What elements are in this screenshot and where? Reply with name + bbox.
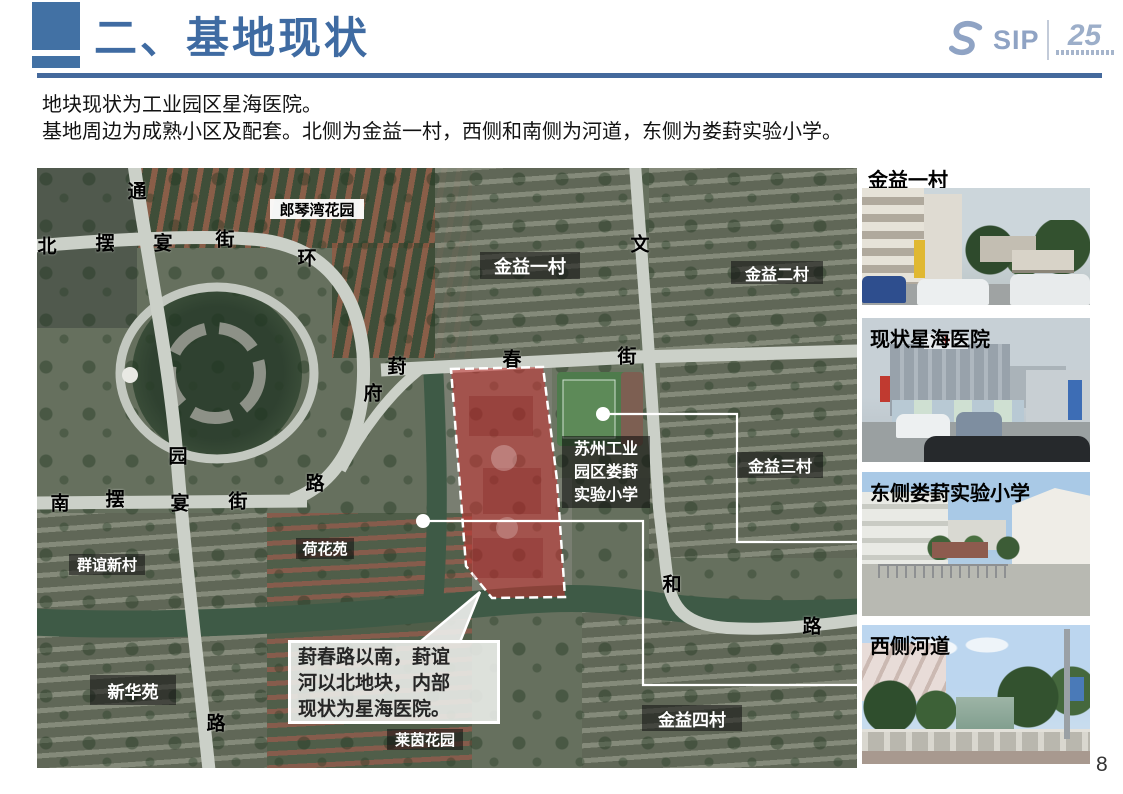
car-blue <box>862 276 906 303</box>
callout-line-3: 现状为星海医院。 <box>298 697 490 723</box>
street-label: 环 <box>297 244 316 271</box>
site-callout: 葑春路以南，葑谊 河以北地块，内部 现状为星海医院。 <box>288 640 500 724</box>
street-label: 北 <box>37 232 56 259</box>
site-building <box>469 396 533 436</box>
street-label: 葑 <box>387 352 406 379</box>
round-building <box>170 328 260 418</box>
street-label: 路 <box>305 469 324 496</box>
street-label: 园 <box>168 442 187 469</box>
logo-caption-microtext <box>1056 50 1114 55</box>
area-label-hehuayuan: 荷花苑 <box>296 538 354 559</box>
bridge-deck <box>862 751 1090 764</box>
street-label: 街 <box>228 487 247 514</box>
street-label: 路 <box>802 612 821 639</box>
sip-wordmark: SIP <box>993 25 1040 56</box>
yellow-sign <box>914 240 925 278</box>
callout-line-1: 葑春路以南，葑谊 <box>298 645 490 671</box>
street-label: 通 <box>127 177 146 204</box>
fountain <box>122 367 138 383</box>
car-suv <box>1010 274 1090 305</box>
callout-line-2: 河以北地块，内部 <box>298 671 490 697</box>
road-wen-he <box>635 168 857 629</box>
sip-swoosh-icon <box>948 19 986 62</box>
slide: 二、基地现状 SIP 25 地块现状为工业园区星海医院。 基地周边为成熟小区及配… <box>0 0 1123 794</box>
area-label-jinyi-2: 金益二村 <box>731 261 823 284</box>
area-label-qunyi: 群谊新村 <box>69 554 145 575</box>
satellite-map: 通 北 摆 宴 街 环 文 葑 春 街 府 园 路 南 摆 宴 街 和 路 路 … <box>37 168 857 768</box>
area-label-laiyin: 莱茵花园 <box>387 729 463 750</box>
page-number: 8 <box>1096 753 1108 777</box>
sports-track <box>621 372 643 446</box>
intro-line-2: 基地周边为成熟小区及配套。北侧为金益一村，西侧和南侧为河道，东侧为娄葑实验小学。 <box>42 119 842 146</box>
river-water <box>956 697 1014 733</box>
street-label: 摆 <box>95 229 114 256</box>
gate-canopy <box>1012 250 1074 273</box>
car-gray <box>956 412 1002 438</box>
ring-road <box>120 287 314 459</box>
photo-xinghai-hospital: ✚ 现状星海医院 <box>862 318 1090 462</box>
area-label-loufeng-school: 苏州工业 园区娄葑 实验小学 <box>562 436 650 508</box>
photo-label-river: 西侧河道 <box>870 630 950 659</box>
street-label: 春 <box>502 345 521 372</box>
anniversary-25-mark: 25 <box>1056 25 1114 55</box>
photo-label-school: 东侧娄葑实验小学 <box>870 477 1030 506</box>
site-building <box>483 468 541 514</box>
area-label-xinhua: 新华苑 <box>90 675 176 705</box>
blue-sign <box>1070 677 1084 701</box>
street-label: 摆 <box>105 485 124 512</box>
photo-west-river: 西侧河道 <box>862 625 1090 764</box>
street-label: 府 <box>363 379 382 406</box>
photo-label-hospital: 现状星海医院 <box>870 323 990 352</box>
site-courtyard <box>491 445 517 471</box>
car-hood-foreground <box>924 436 1090 462</box>
west-river <box>433 364 437 604</box>
title-accent-square <box>32 2 80 50</box>
gate-barrier <box>878 564 1008 578</box>
page-title: 二、基地现状 <box>94 4 370 66</box>
car-white <box>917 279 989 305</box>
area-label-jinyi-3: 金益三村 <box>737 452 823 478</box>
street-label: 宴 <box>153 229 172 256</box>
area-label-jinyi-4: 金益四村 <box>642 705 742 731</box>
logo-divider <box>1047 20 1049 60</box>
street-label: 和 <box>662 570 681 597</box>
apartment-building <box>924 194 962 290</box>
gate-sign-wall <box>932 542 988 558</box>
title-underline <box>37 73 1102 78</box>
area-label-langqinwan: 郎琴湾花园 <box>270 199 364 219</box>
street-label: 文 <box>630 230 649 257</box>
photo-jinyi-1 <box>862 188 1090 305</box>
blue-sign <box>1068 380 1082 420</box>
area-label-jinyi-1: 金益一村 <box>480 252 580 279</box>
trees-left <box>862 677 966 735</box>
red-flag <box>880 376 890 402</box>
leader-dot-school <box>596 407 610 421</box>
sip-logo: SIP 25 <box>948 16 1114 64</box>
photo-loufeng-school: 东侧娄葑实验小学 <box>862 472 1090 616</box>
intro-text: 地块现状为工业园区星海医院。 基地周边为成熟小区及配套。北侧为金益一村，西侧和南… <box>42 92 842 146</box>
street-label: 路 <box>206 709 225 736</box>
site-building <box>473 538 543 578</box>
street-label: 宴 <box>170 489 189 516</box>
street-label: 南 <box>50 489 69 516</box>
intro-line-1: 地块现状为工业园区星海医院。 <box>42 92 842 119</box>
street-label: 街 <box>617 342 636 369</box>
leader-dot-river <box>416 514 430 528</box>
car-white <box>896 414 950 438</box>
street-label: 街 <box>215 225 234 252</box>
title-accent-bar <box>32 56 80 68</box>
